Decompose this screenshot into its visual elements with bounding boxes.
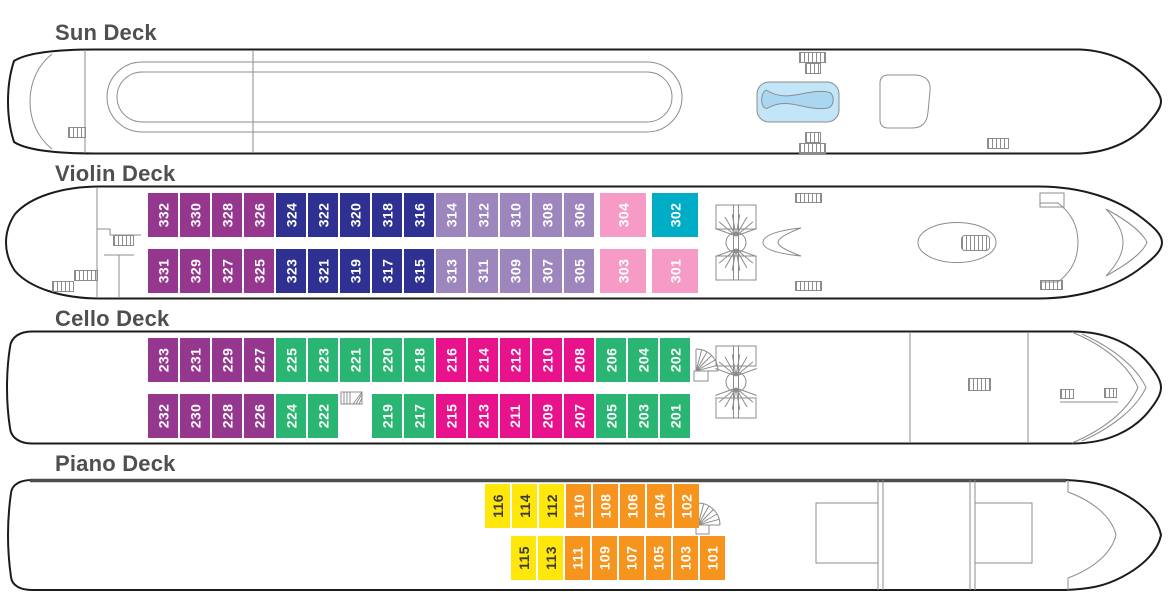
cabin-318[interactable]: 318 <box>372 193 402 237</box>
cabin-number: 208 <box>572 348 586 373</box>
cabin-208[interactable]: 208 <box>564 338 594 382</box>
cabin-314[interactable]: 314 <box>436 193 466 237</box>
stairs-icon[interactable] <box>968 378 991 391</box>
cabin-312[interactable]: 312 <box>468 193 498 237</box>
cabin-number: 110 <box>571 494 585 518</box>
cabin-number: 220 <box>380 348 394 373</box>
deck-title-piano: Piano Deck <box>55 451 176 477</box>
cabin-number: 222 <box>316 404 330 429</box>
cabin-number: 116 <box>490 494 504 518</box>
cabin-number: 115 <box>516 546 530 570</box>
cabin-207[interactable]: 207 <box>564 394 594 438</box>
cabin-number: 332 <box>156 203 170 228</box>
cello-cabin-row-upper: 2332312292272252232212202182162142122102… <box>148 338 690 382</box>
cabin-number: 106 <box>626 494 640 519</box>
cabin-304[interactable]: 304 <box>600 193 646 237</box>
cabin-329[interactable]: 329 <box>180 249 210 293</box>
cabin-204[interactable]: 204 <box>628 338 658 382</box>
cabin-214[interactable]: 214 <box>468 338 498 382</box>
cabin-number: 231 <box>188 348 202 373</box>
cabin-number: 301 <box>668 259 682 284</box>
cabin-302[interactable]: 302 <box>652 193 698 237</box>
cabin-number: 203 <box>636 404 650 429</box>
cabin-number: 227 <box>252 348 266 373</box>
cabin-313[interactable]: 313 <box>436 249 466 293</box>
cabin-number: 213 <box>476 404 490 429</box>
cabin-number: 330 <box>188 203 202 228</box>
cabin-115[interactable]: 115 <box>511 536 536 580</box>
cabin-225[interactable]: 225 <box>276 338 306 382</box>
cabin-number: 218 <box>412 348 426 373</box>
cabin-number: 314 <box>444 203 458 228</box>
stairs-icon[interactable] <box>74 270 98 281</box>
cello-cabin-row-lower: 2322302282262242222192172152132112092072… <box>148 394 690 438</box>
cabin-109[interactable]: 109 <box>592 536 617 580</box>
corridor-gap <box>340 394 370 438</box>
cabin-number: 221 <box>348 348 362 373</box>
cabin-205[interactable]: 205 <box>596 394 626 438</box>
cabin-231[interactable]: 231 <box>180 338 210 382</box>
stairs-icon[interactable] <box>52 281 74 292</box>
cabin-308[interactable]: 308 <box>532 193 562 237</box>
cabin-201[interactable]: 201 <box>660 394 690 438</box>
cabin-104[interactable]: 104 <box>647 484 672 528</box>
cabin-222[interactable]: 222 <box>308 394 338 438</box>
cabin-113[interactable]: 113 <box>538 536 563 580</box>
cabin-331[interactable]: 331 <box>148 249 178 293</box>
cabin-number: 210 <box>540 348 554 373</box>
cabin-220[interactable]: 220 <box>372 338 402 382</box>
cabin-102[interactable]: 102 <box>674 484 699 528</box>
cabin-321[interactable]: 321 <box>308 249 338 293</box>
cabin-number: 204 <box>636 348 650 373</box>
stairs-icon[interactable] <box>1040 280 1063 290</box>
cabin-number: 214 <box>476 348 490 373</box>
cabin-310[interactable]: 310 <box>500 193 530 237</box>
cabin-number: 229 <box>220 348 234 373</box>
cabin-227[interactable]: 227 <box>244 338 274 382</box>
cabin-212[interactable]: 212 <box>500 338 530 382</box>
cabin-number: 201 <box>668 404 682 429</box>
cabin-number: 313 <box>444 259 458 284</box>
cabin-111[interactable]: 111 <box>565 536 590 580</box>
cabin-number: 226 <box>252 404 266 429</box>
cabin-number: 206 <box>604 348 618 373</box>
stairs-icon[interactable] <box>795 193 822 203</box>
piano-cabin-row-upper: 116114112110108106104102 <box>485 484 699 528</box>
cabin-number: 224 <box>284 404 298 429</box>
cabin-305[interactable]: 305 <box>564 249 594 293</box>
cabin-322[interactable]: 322 <box>308 193 338 237</box>
cabin-number: 215 <box>444 404 458 429</box>
cabin-324[interactable]: 324 <box>276 193 306 237</box>
cabin-number: 230 <box>188 404 202 429</box>
cabin-232[interactable]: 232 <box>148 394 178 438</box>
cabin-number: 232 <box>156 404 170 429</box>
cabin-219[interactable]: 219 <box>372 394 402 438</box>
stairs-icon[interactable] <box>805 63 821 74</box>
stairs-icon[interactable] <box>795 281 822 291</box>
cabin-108[interactable]: 108 <box>593 484 618 528</box>
cabin-number: 108 <box>599 494 613 519</box>
cabin-number: 322 <box>316 203 330 228</box>
cabin-number: 315 <box>412 259 426 284</box>
cabin-number: 101 <box>706 546 720 571</box>
cabin-332[interactable]: 332 <box>148 193 178 237</box>
deck-title-sun: Sun Deck <box>55 20 157 46</box>
cabin-number: 306 <box>572 203 586 228</box>
cabin-number: 223 <box>316 348 330 373</box>
cabin-325[interactable]: 325 <box>244 249 274 293</box>
cabin-number: 327 <box>220 259 234 284</box>
cabin-number: 303 <box>616 259 630 284</box>
cabin-number: 307 <box>540 259 554 284</box>
cabin-number: 217 <box>412 404 426 429</box>
ship-deck-plan: Sun Deck Violin Deck <box>0 0 1170 612</box>
cabin-307[interactable]: 307 <box>532 249 562 293</box>
cabin-223[interactable]: 223 <box>308 338 338 382</box>
cabin-217[interactable]: 217 <box>404 394 434 438</box>
cabin-209[interactable]: 209 <box>532 394 562 438</box>
cabin-number: 105 <box>652 546 666 571</box>
cabin-315[interactable]: 315 <box>404 249 434 293</box>
cabin-number: 317 <box>380 259 394 284</box>
cabin-323[interactable]: 323 <box>276 249 306 293</box>
violin-cabin-row-upper: 3323303283263243223203183163143123103083… <box>148 193 698 237</box>
cabin-number: 225 <box>284 348 298 373</box>
cabin-number: 320 <box>348 203 362 228</box>
cabin-number: 309 <box>508 259 522 284</box>
cabin-229[interactable]: 229 <box>212 338 242 382</box>
cabin-107[interactable]: 107 <box>619 536 644 580</box>
cabin-number: 114 <box>517 494 531 518</box>
pool-icon <box>757 82 839 122</box>
cabin-228[interactable]: 228 <box>212 394 242 438</box>
cabin-230[interactable]: 230 <box>180 394 210 438</box>
cabin-number: 321 <box>316 259 330 284</box>
deck-title-violin: Violin Deck <box>55 161 175 187</box>
cabin-number: 311 <box>476 259 490 283</box>
cabin-202[interactable]: 202 <box>660 338 690 382</box>
cabin-327[interactable]: 327 <box>212 249 242 293</box>
cabin-number: 111 <box>570 546 584 569</box>
cabin-number: 216 <box>444 348 458 373</box>
stairs-icon[interactable] <box>799 143 826 154</box>
cabin-number: 302 <box>668 203 682 228</box>
cabin-number: 211 <box>508 404 522 428</box>
cabin-301[interactable]: 301 <box>652 249 698 293</box>
cabin-number: 328 <box>220 203 234 228</box>
cabin-317[interactable]: 317 <box>372 249 402 293</box>
cabin-number: 316 <box>412 203 426 228</box>
cabin-233[interactable]: 233 <box>148 338 178 382</box>
cabin-number: 109 <box>598 546 612 571</box>
cabin-number: 304 <box>616 203 630 228</box>
cabin-112[interactable]: 112 <box>539 484 564 528</box>
cabin-328[interactable]: 328 <box>212 193 242 237</box>
stairs-icon[interactable] <box>799 52 826 63</box>
cabin-number: 310 <box>508 203 522 228</box>
cabin-218[interactable]: 218 <box>404 338 434 382</box>
cabin-number: 233 <box>156 348 170 373</box>
cabin-number: 205 <box>604 404 618 429</box>
cabin-number: 308 <box>540 203 554 228</box>
cabin-306[interactable]: 306 <box>564 193 594 237</box>
cabin-210[interactable]: 210 <box>532 338 562 382</box>
cabin-216[interactable]: 216 <box>436 338 466 382</box>
cabin-116[interactable]: 116 <box>485 484 510 528</box>
cabin-number: 305 <box>572 259 586 284</box>
stairs-icon[interactable] <box>805 132 821 143</box>
deck-title-cello: Cello Deck <box>55 306 170 332</box>
cabin-number: 318 <box>380 203 394 228</box>
cabin-211[interactable]: 211 <box>500 394 530 438</box>
cabin-114[interactable]: 114 <box>512 484 537 528</box>
cabin-number: 207 <box>572 404 586 429</box>
cabin-number: 212 <box>508 348 522 373</box>
cabin-215[interactable]: 215 <box>436 394 466 438</box>
cabin-number: 102 <box>680 494 694 519</box>
cabin-110[interactable]: 110 <box>566 484 591 528</box>
cabin-number: 228 <box>220 404 234 429</box>
cabin-316[interactable]: 316 <box>404 193 434 237</box>
cabin-number: 202 <box>668 348 682 373</box>
cabin-203[interactable]: 203 <box>628 394 658 438</box>
cabin-number: 312 <box>476 203 490 228</box>
stairs-icon[interactable] <box>961 235 990 251</box>
cabin-number: 209 <box>540 404 554 429</box>
violin-cabin-row-lower: 3313293273253233213193173153133113093073… <box>148 249 698 293</box>
cabin-326[interactable]: 326 <box>244 193 274 237</box>
cabin-number: 319 <box>348 259 362 284</box>
cabin-number: 331 <box>156 259 170 284</box>
piano-cabin-row-lower: 115113111109107105103101 <box>511 536 725 580</box>
stairs-icon[interactable] <box>987 138 1009 149</box>
cabin-105[interactable]: 105 <box>646 536 671 580</box>
cabin-330[interactable]: 330 <box>180 193 210 237</box>
cabin-number: 112 <box>544 494 558 518</box>
cabin-213[interactable]: 213 <box>468 394 498 438</box>
cabin-303[interactable]: 303 <box>600 249 646 293</box>
cabin-320[interactable]: 320 <box>340 193 370 237</box>
stairs-icon[interactable] <box>68 127 86 138</box>
cabin-number: 329 <box>188 259 202 284</box>
cabin-number: 324 <box>284 203 298 228</box>
cabin-number: 326 <box>252 203 266 228</box>
cabin-206[interactable]: 206 <box>596 338 626 382</box>
stairs-icon[interactable] <box>113 235 134 246</box>
cabin-311[interactable]: 311 <box>468 249 498 293</box>
cabin-103[interactable]: 103 <box>673 536 698 580</box>
cabin-226[interactable]: 226 <box>244 394 274 438</box>
cabin-number: 219 <box>380 404 394 429</box>
cabin-319[interactable]: 319 <box>340 249 370 293</box>
cabin-number: 113 <box>543 546 557 570</box>
cabin-221[interactable]: 221 <box>340 338 370 382</box>
cabin-106[interactable]: 106 <box>620 484 645 528</box>
cabin-number: 325 <box>252 259 266 284</box>
cabin-101[interactable]: 101 <box>700 536 725 580</box>
cabin-number: 107 <box>625 546 639 571</box>
stairs-icon[interactable] <box>1060 389 1074 399</box>
cabin-number: 323 <box>284 259 298 284</box>
cabin-224[interactable]: 224 <box>276 394 306 438</box>
cabin-number: 103 <box>679 546 693 571</box>
stairs-icon[interactable] <box>1104 388 1117 398</box>
cabin-309[interactable]: 309 <box>500 249 530 293</box>
cabin-number: 104 <box>653 494 667 519</box>
